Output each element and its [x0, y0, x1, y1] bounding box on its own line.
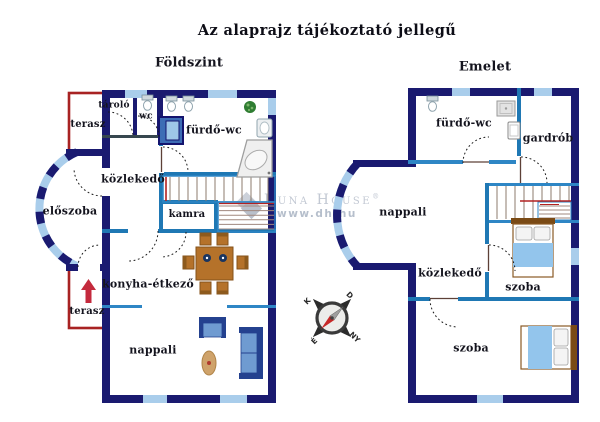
room-label-kamra: kamra [169, 210, 206, 220]
upper-staircase [497, 186, 571, 220]
bay-window-upper [337, 163, 358, 267]
entrance-arrow-icon [81, 279, 96, 303]
double-bed-horizontal-icon [521, 325, 577, 370]
armchair-icon [199, 317, 226, 338]
rug-icon [202, 351, 216, 375]
room-label-kozlekedo-ground: közlekedő [101, 174, 165, 185]
floorplan-page: Duna House® www.dh.hu [0, 0, 600, 422]
dining-table-icon [196, 247, 233, 280]
room-label-tarolo: tároló [98, 102, 129, 111]
room-label-nappali-upper: nappali [379, 207, 426, 218]
compass-label-north: É [309, 336, 319, 346]
shower-icon [497, 101, 515, 116]
toilet-icon [166, 96, 177, 111]
double-bed-vertical-icon [511, 218, 555, 277]
room-label-szoba-1: szoba [505, 282, 541, 293]
room-label-furdo-ground: fürdő-wc [186, 125, 242, 136]
floor-name-upper: Emelet [459, 61, 511, 74]
room-label-gardrob: gardrób [523, 133, 574, 144]
toilet-icon [427, 96, 438, 111]
sink-icon [257, 119, 272, 137]
sofa-icon [239, 327, 263, 379]
bidet-icon [183, 96, 194, 111]
room-label-furdo-upper: fürdő-wc [436, 118, 492, 129]
wc-toilet-icon [142, 95, 153, 110]
floor-name-ground: Földszint [155, 57, 223, 70]
compass-label-east: K [302, 295, 313, 306]
room-label-terasz-felso: terasz [70, 120, 105, 130]
room-label-konyha: konyha-étkező [102, 279, 194, 290]
room-label-kozlekedo-upper: közlekedő [418, 268, 482, 279]
room-label-szoba-2: szoba [453, 343, 489, 354]
compass-label-south: D [344, 290, 355, 301]
room-label-terasz-also: terasz [69, 307, 104, 317]
plant-icon [244, 101, 256, 113]
compass-label-west: NY [347, 330, 362, 345]
page-title: Az alaprajz tájékoztató jellegű [198, 24, 456, 39]
room-label-nappali-ground: nappali [129, 345, 176, 356]
room-label-eloszoba: előszoba [43, 206, 98, 217]
living-room-furniture [199, 317, 263, 379]
sink-icon [508, 122, 520, 139]
compass-rose: D K É NY [302, 290, 362, 346]
corner-bathtub-icon [237, 140, 272, 177]
room-label-wc: wc [139, 113, 153, 122]
